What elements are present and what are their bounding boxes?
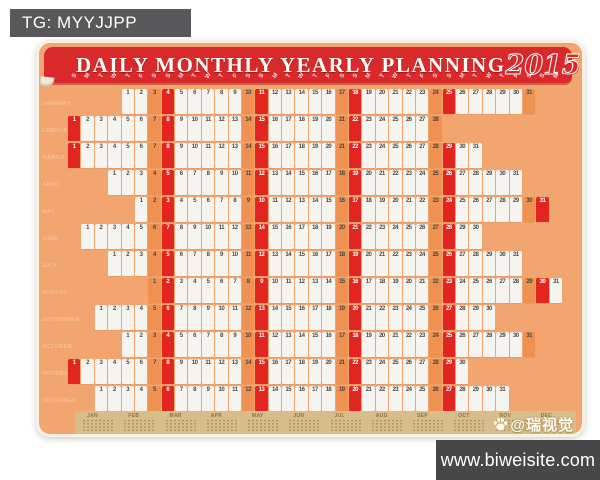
day-number: 14: [282, 170, 294, 177]
day-cell: 27: [416, 143, 428, 168]
day-number: 29: [483, 170, 495, 177]
day-cell: 6: [135, 116, 147, 141]
day-cell: 19: [362, 332, 374, 357]
mini-month-days: [330, 419, 362, 432]
day-cell: 5: [148, 386, 160, 411]
day-number: 3: [135, 251, 147, 258]
day-number: 1: [148, 278, 160, 285]
day-number: 3: [122, 386, 134, 393]
day-cell: 14: [295, 332, 307, 357]
day-cell: 19: [336, 386, 348, 411]
day-number: 15: [255, 116, 267, 123]
day-number: 5: [122, 359, 134, 366]
month-row-february: FEBRUARY12345678910111213141516171819202…: [39, 116, 582, 142]
day-cell: 31: [536, 197, 548, 222]
day-number: 16: [309, 251, 321, 258]
day-number: 21: [362, 386, 374, 393]
month-label: FEBRUARY: [42, 128, 68, 134]
day-number: 24: [389, 224, 401, 231]
day-cell: 28: [483, 332, 495, 357]
day-number: 14: [242, 116, 254, 123]
day-number: 15: [255, 359, 267, 366]
day-number: 8: [242, 278, 254, 285]
mini-month-oct: OCT: [452, 413, 487, 433]
day-number: 12: [269, 89, 281, 96]
day-cell: 21: [362, 386, 374, 411]
day-number: 28: [469, 170, 481, 177]
day-cell: 5: [175, 332, 187, 357]
day-cell: 11: [242, 251, 254, 276]
day-cell: 26: [416, 224, 428, 249]
month-label: MAY: [42, 209, 68, 215]
day-number: 10: [188, 359, 200, 366]
day-number: 6: [135, 359, 147, 366]
day-cell: 15: [309, 332, 321, 357]
day-cell: 15: [282, 386, 294, 411]
day-cell: 22: [403, 332, 415, 357]
day-cell: 13: [295, 197, 307, 222]
day-cell: 11: [229, 386, 241, 411]
day-cell: 12: [242, 386, 254, 411]
day-cell: 9: [202, 386, 214, 411]
day-cell: 9: [229, 332, 241, 357]
day-cell: 11: [255, 89, 267, 114]
day-cell: 28: [429, 143, 441, 168]
day-number: 29: [443, 359, 455, 366]
day-cell: 5: [162, 170, 174, 195]
day-number: 13: [269, 170, 281, 177]
day-cell: 17: [282, 116, 294, 141]
planner-poster: DAILY MONTHLY YEARLY PLANNING 2015 SMTWT…: [36, 40, 585, 437]
day-cell: 20: [322, 116, 334, 141]
day-cell: 31: [510, 170, 522, 195]
day-cell: 2: [81, 143, 93, 168]
site-url-text: www.biweisite.com: [441, 450, 595, 471]
day-cell: 27: [483, 197, 495, 222]
day-cell: 3: [135, 251, 147, 276]
day-number: 9: [202, 305, 214, 312]
day-number: 28: [496, 197, 508, 204]
day-cell: 7: [175, 386, 187, 411]
day-number: 24: [416, 170, 428, 177]
day-cell: 2: [95, 224, 107, 249]
mini-month-sep: SEP: [411, 413, 446, 433]
day-cell: 27: [469, 332, 481, 357]
day-number: 30: [536, 278, 548, 285]
day-cell: 31: [496, 386, 508, 411]
day-number: 15: [282, 386, 294, 393]
day-cell: 16: [295, 386, 307, 411]
day-number: 7: [215, 197, 227, 204]
day-cell: 18: [349, 89, 361, 114]
day-number: 4: [108, 143, 120, 150]
day-number: 17: [336, 332, 348, 339]
day-number: 19: [336, 305, 348, 312]
day-cell: 9: [215, 170, 227, 195]
day-cell: 13: [229, 359, 241, 384]
month-label: JUNE: [42, 236, 68, 242]
day-number: 9: [229, 89, 241, 96]
day-number: 19: [309, 143, 321, 150]
day-cell: 6: [175, 251, 187, 276]
day-number: 4: [175, 197, 187, 204]
page: TG: MYYJJPP DAILY MONTHLY YEARLY PLANNIN…: [0, 0, 600, 480]
month-label: DECEMBER: [42, 398, 68, 404]
day-cell: 11: [215, 224, 227, 249]
mini-month-days: [453, 419, 485, 432]
day-cell: 7: [202, 89, 214, 114]
day-number: 22: [429, 278, 441, 285]
day-number: 11: [269, 197, 281, 204]
day-number: 8: [175, 224, 187, 231]
site-url-bar: www.biweisite.com: [436, 440, 600, 480]
day-cell: 13: [255, 386, 267, 411]
day-cell: 27: [416, 359, 428, 384]
day-number: 12: [215, 116, 227, 123]
day-number: 30: [483, 386, 495, 393]
day-cell: 24: [403, 386, 415, 411]
day-number: 11: [202, 116, 214, 123]
day-number: 26: [443, 170, 455, 177]
day-cell: 18: [362, 197, 374, 222]
day-cell: 26: [403, 359, 415, 384]
day-cell: 30: [510, 332, 522, 357]
day-cell: 31: [510, 251, 522, 276]
day-cell: 15: [322, 197, 334, 222]
day-number: 23: [416, 89, 428, 96]
day-cell: 28: [429, 359, 441, 384]
day-number: 19: [349, 170, 361, 177]
day-cell: 12: [269, 332, 281, 357]
day-number: 5: [148, 305, 160, 312]
day-number: 18: [336, 251, 348, 258]
day-cell: 5: [122, 116, 134, 141]
day-cell: 11: [202, 116, 214, 141]
day-number: 18: [349, 332, 361, 339]
day-cell: 5: [162, 251, 174, 276]
day-number: 17: [295, 224, 307, 231]
day-number: 9: [175, 143, 187, 150]
day-cell: 1: [81, 224, 93, 249]
day-cell: 30: [456, 143, 468, 168]
day-number: 28: [510, 278, 522, 285]
day-number: 30: [469, 224, 481, 231]
day-cell: 22: [389, 170, 401, 195]
day-number: 6: [175, 170, 187, 177]
day-cell: 30: [469, 224, 481, 249]
month-label: AUGUST: [42, 290, 68, 296]
day-cell: 28: [443, 224, 455, 249]
day-cell: 4: [148, 251, 160, 276]
day-number: 18: [349, 89, 361, 96]
day-cell: 1: [122, 89, 134, 114]
day-cell: 10: [215, 305, 227, 330]
day-cell: 1: [68, 143, 80, 168]
day-number: 21: [362, 305, 374, 312]
day-number: 13: [269, 251, 281, 258]
day-number: 26: [403, 143, 415, 150]
day-number: 27: [496, 278, 508, 285]
day-cell: 3: [122, 305, 134, 330]
day-number: 12: [255, 251, 267, 258]
month-label: OCTOBER: [42, 344, 68, 350]
day-number: 1: [68, 143, 80, 150]
day-cell: 20: [362, 170, 374, 195]
day-number: 29: [443, 143, 455, 150]
day-number: 29: [483, 251, 495, 258]
day-cell: 4: [108, 359, 120, 384]
day-cell: 14: [242, 116, 254, 141]
day-number: 3: [162, 197, 174, 204]
day-number: 13: [229, 143, 241, 150]
month-label: JANUARY: [42, 101, 68, 107]
day-number: 13: [255, 305, 267, 312]
day-cell: 28: [510, 278, 522, 303]
day-number: 22: [376, 305, 388, 312]
day-number: 25: [403, 224, 415, 231]
day-cell: 22: [416, 197, 428, 222]
day-number: 19: [362, 89, 374, 96]
day-cell: 18: [295, 359, 307, 384]
day-cell: 22: [389, 251, 401, 276]
day-number: 7: [148, 143, 160, 150]
day-cell: 30: [456, 359, 468, 384]
day-cell: 8: [162, 116, 174, 141]
mini-month-days: [123, 419, 155, 432]
day-cell: 11: [282, 278, 294, 303]
day-number: 24: [429, 89, 441, 96]
day-number: 10: [242, 332, 254, 339]
day-number: 6: [135, 143, 147, 150]
day-number: 14: [269, 386, 281, 393]
day-cell: 26: [443, 170, 455, 195]
day-number: 1: [108, 170, 120, 177]
day-number: 27: [416, 359, 428, 366]
day-cell: 14: [242, 359, 254, 384]
day-number: 15: [309, 89, 321, 96]
day-cell: 19: [309, 359, 321, 384]
day-number: 22: [349, 359, 361, 366]
day-cell: 29: [443, 359, 455, 384]
day-number: 20: [336, 224, 348, 231]
day-number: 29: [456, 224, 468, 231]
day-number: 30: [523, 197, 535, 204]
day-number: 20: [376, 89, 388, 96]
day-cell: 9: [188, 224, 200, 249]
day-number: 8: [229, 197, 241, 204]
day-cell: 24: [429, 332, 441, 357]
day-cell: 24: [376, 359, 388, 384]
day-number: 31: [496, 386, 508, 393]
day-cell: 23: [389, 386, 401, 411]
month-row-december: DECEMBER12345678910111213141516171819202…: [39, 386, 582, 412]
day-number: 3: [122, 305, 134, 312]
day-number: 24: [443, 197, 455, 204]
day-cell: 7: [202, 332, 214, 357]
day-cell: 7: [188, 170, 200, 195]
month-row-july: JULY123456789101112131415161718192021222…: [39, 251, 582, 277]
day-cell: 21: [376, 251, 388, 276]
day-number: 12: [282, 197, 294, 204]
day-cell: 6: [135, 143, 147, 168]
day-cell: 9: [175, 359, 187, 384]
day-number: 5: [122, 143, 134, 150]
day-cell: 18: [349, 332, 361, 357]
mini-month-days: [82, 419, 114, 432]
day-cell: 25: [389, 359, 401, 384]
day-cell: 14: [269, 305, 281, 330]
day-cell: 17: [309, 386, 321, 411]
day-cell: 27: [443, 305, 455, 330]
day-cell: 12: [215, 116, 227, 141]
day-number: 14: [269, 305, 281, 312]
day-cell: 20: [349, 305, 361, 330]
mini-month-feb: FEB: [122, 413, 157, 433]
day-number: 20: [322, 116, 334, 123]
day-cell: 13: [282, 332, 294, 357]
day-number: 7: [175, 386, 187, 393]
day-cell: 22: [362, 224, 374, 249]
day-number: 18: [295, 143, 307, 150]
day-number: 26: [429, 386, 441, 393]
day-number: 24: [456, 278, 468, 285]
day-cell: 8: [215, 332, 227, 357]
day-number: 29: [496, 89, 508, 96]
day-number: 4: [162, 89, 174, 96]
day-number: 3: [95, 143, 107, 150]
day-cell: 11: [269, 197, 281, 222]
day-number: 4: [135, 305, 147, 312]
day-number: 14: [255, 224, 267, 231]
day-cell: 4: [148, 170, 160, 195]
day-cell: 22: [403, 89, 415, 114]
day-cell: 6: [188, 332, 200, 357]
day-number: 19: [336, 386, 348, 393]
day-number: 20: [389, 197, 401, 204]
day-number: 5: [122, 116, 134, 123]
day-cell: 13: [269, 170, 281, 195]
day-number: 30: [483, 305, 495, 312]
day-cell: 4: [188, 278, 200, 303]
day-cell: 24: [376, 143, 388, 168]
day-cell: 5: [135, 224, 147, 249]
day-cell: 6: [175, 170, 187, 195]
day-number: 25: [443, 89, 455, 96]
day-cell: 16: [309, 170, 321, 195]
day-number: 5: [162, 170, 174, 177]
day-number: 15: [309, 332, 321, 339]
day-cell: 16: [349, 278, 361, 303]
day-number: 29: [510, 197, 522, 204]
day-cell: 29: [496, 332, 508, 357]
day-number: 6: [215, 278, 227, 285]
day-number: 13: [255, 386, 267, 393]
day-number: 1: [68, 116, 80, 123]
day-number: 17: [282, 359, 294, 366]
day-cell: 28: [496, 197, 508, 222]
day-cell: 17: [322, 251, 334, 276]
day-cell: 15: [282, 305, 294, 330]
day-number: 8: [188, 305, 200, 312]
day-number: 21: [389, 89, 401, 96]
day-cell: 13: [255, 305, 267, 330]
day-number: 29: [523, 278, 535, 285]
day-number: 16: [295, 305, 307, 312]
day-cell: 29: [483, 251, 495, 276]
day-number: 9: [242, 197, 254, 204]
day-number: 1: [135, 197, 147, 204]
day-cell: 12: [282, 197, 294, 222]
day-number: 2: [135, 332, 147, 339]
day-cell: 9: [175, 116, 187, 141]
day-cell: 28: [469, 251, 481, 276]
day-number: 6: [162, 386, 174, 393]
day-cell: 24: [389, 224, 401, 249]
day-cell: 17: [336, 332, 348, 357]
day-cell: 19: [349, 170, 361, 195]
day-number: 29: [496, 332, 508, 339]
day-cell: 12: [215, 143, 227, 168]
day-number: 2: [81, 143, 93, 150]
mini-month-mar: MAR: [164, 413, 199, 433]
day-number: 2: [81, 359, 93, 366]
day-number: 25: [389, 116, 401, 123]
day-cell: 21: [336, 143, 348, 168]
day-number: 26: [443, 251, 455, 258]
tg-label-text: TG: MYYJJPP: [22, 13, 137, 32]
day-number: 23: [389, 305, 401, 312]
day-number: 23: [389, 386, 401, 393]
day-number: 9: [202, 386, 214, 393]
day-cell: 15: [255, 116, 267, 141]
day-cell: 20: [322, 359, 334, 384]
day-cell: 3: [95, 116, 107, 141]
mini-month-days: [288, 419, 320, 432]
day-cell: 1: [68, 359, 80, 384]
day-number: 23: [443, 278, 455, 285]
day-cell: 16: [269, 116, 281, 141]
day-number: 12: [215, 359, 227, 366]
day-number: 16: [309, 170, 321, 177]
day-number: 22: [362, 224, 374, 231]
day-cell: 11: [202, 359, 214, 384]
day-cell: 13: [269, 251, 281, 276]
day-cell: 23: [403, 251, 415, 276]
day-cell: 23: [389, 305, 401, 330]
day-number: 7: [148, 359, 160, 366]
day-cell: 22: [429, 278, 441, 303]
day-number: 24: [403, 386, 415, 393]
day-number: 16: [322, 89, 334, 96]
day-number: 22: [349, 143, 361, 150]
day-cell: 23: [403, 170, 415, 195]
day-number: 21: [336, 116, 348, 123]
day-number: 22: [376, 386, 388, 393]
day-number: 12: [295, 278, 307, 285]
day-number: 15: [269, 224, 281, 231]
day-number: 31: [523, 89, 535, 96]
day-cell: 6: [215, 278, 227, 303]
day-number: 5: [188, 197, 200, 204]
day-cell: 31: [523, 332, 535, 357]
day-number: 11: [202, 143, 214, 150]
day-number: 25: [429, 251, 441, 258]
day-number: 13: [282, 89, 294, 96]
day-cell: 20: [349, 386, 361, 411]
day-number: 18: [322, 305, 334, 312]
day-cell: 14: [282, 251, 294, 276]
day-cell: 2: [122, 251, 134, 276]
